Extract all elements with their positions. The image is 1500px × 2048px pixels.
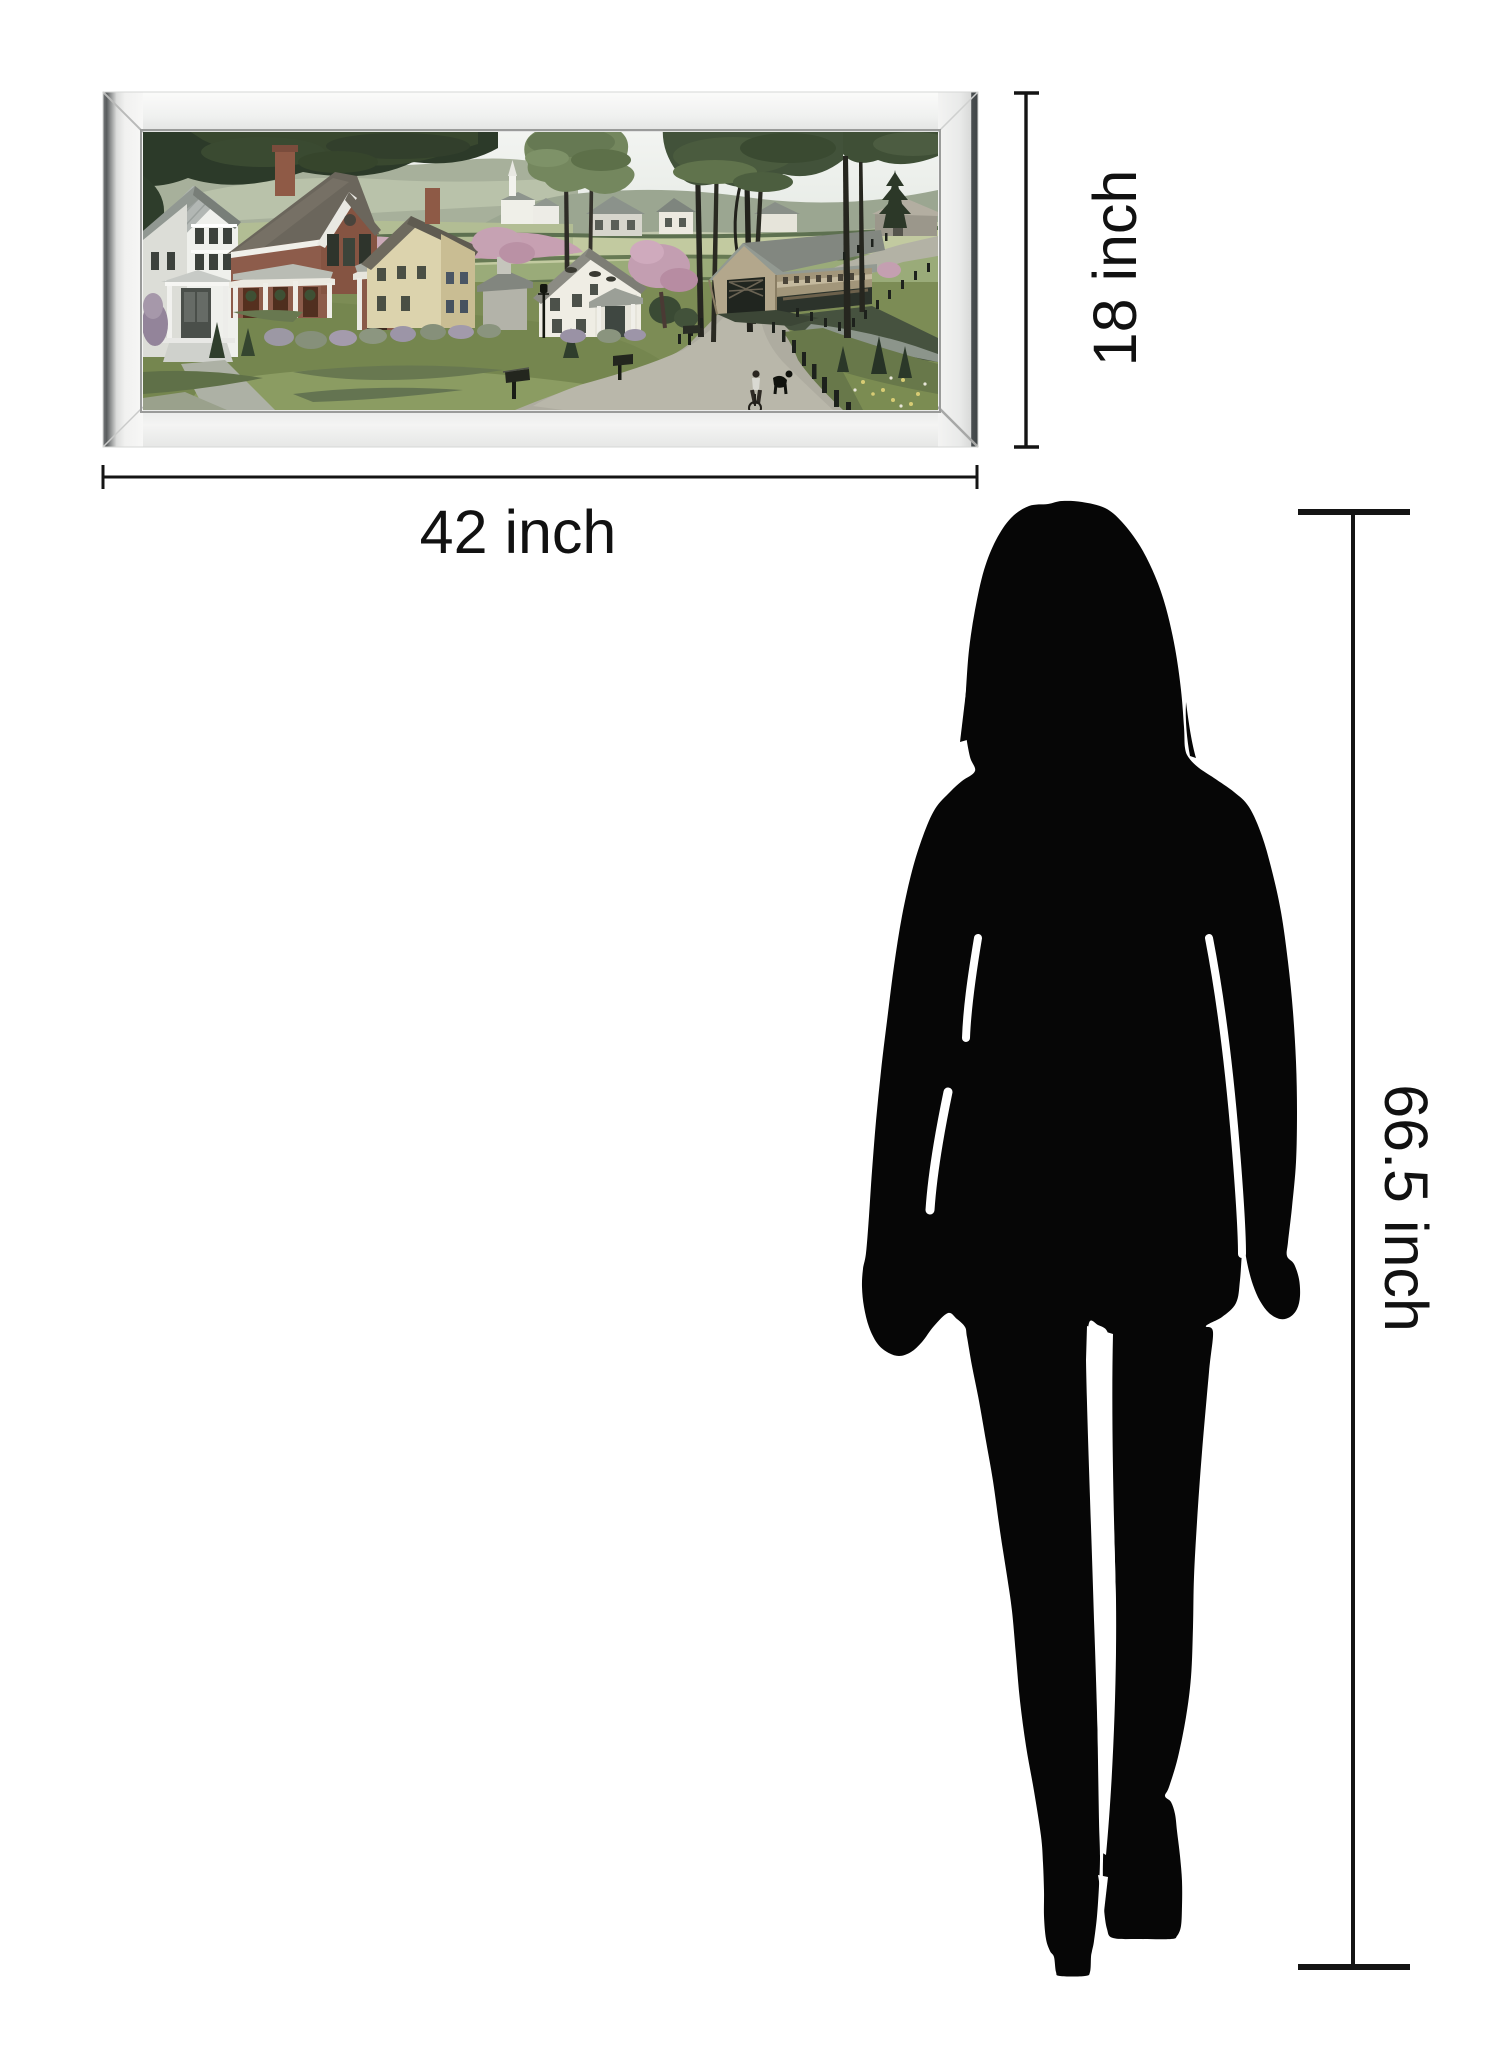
svg-text:18 inch: 18 inch [1081, 170, 1149, 367]
svg-text:42 inch: 42 inch [420, 498, 617, 566]
svg-text:66.5 inch: 66.5 inch [1372, 1084, 1440, 1332]
